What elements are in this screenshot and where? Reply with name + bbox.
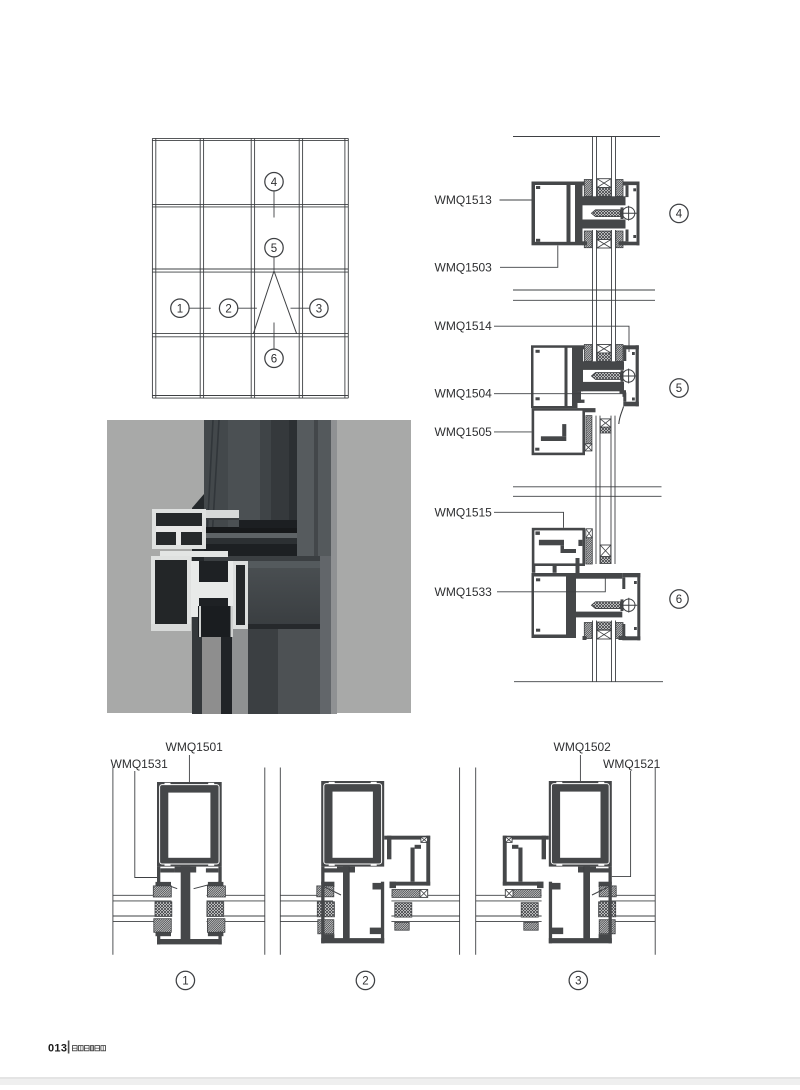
svg-text:WMQ1503: WMQ1503	[435, 260, 493, 274]
svg-text:WMQ1531: WMQ1531	[111, 757, 169, 771]
svg-text:6: 6	[676, 594, 682, 606]
svg-text:1: 1	[177, 303, 183, 315]
svg-text:6: 6	[271, 353, 277, 365]
svg-text:3: 3	[575, 976, 581, 988]
svg-text:WMQ1533: WMQ1533	[435, 585, 493, 599]
svg-text:4: 4	[676, 209, 683, 221]
svg-text:2: 2	[225, 303, 231, 315]
svg-text:3: 3	[316, 303, 322, 315]
svg-text:WMQ1521: WMQ1521	[603, 757, 661, 771]
svg-text:013: 013	[48, 1043, 67, 1055]
svg-text:5: 5	[676, 383, 682, 395]
svg-text:WMQ1502: WMQ1502	[554, 740, 612, 754]
svg-text:4: 4	[271, 177, 278, 189]
svg-text:2: 2	[362, 976, 368, 988]
svg-text:WMQ1514: WMQ1514	[435, 319, 493, 333]
svg-text:WMQ1504: WMQ1504	[435, 387, 493, 401]
svg-text:WMQ1513: WMQ1513	[435, 193, 493, 207]
svg-text:1: 1	[182, 976, 188, 988]
svg-text:WMQ1501: WMQ1501	[166, 740, 224, 754]
svg-text:WMQ1515: WMQ1515	[435, 505, 493, 519]
svg-text:5: 5	[271, 243, 277, 255]
svg-text:WMQ1505: WMQ1505	[435, 425, 493, 439]
